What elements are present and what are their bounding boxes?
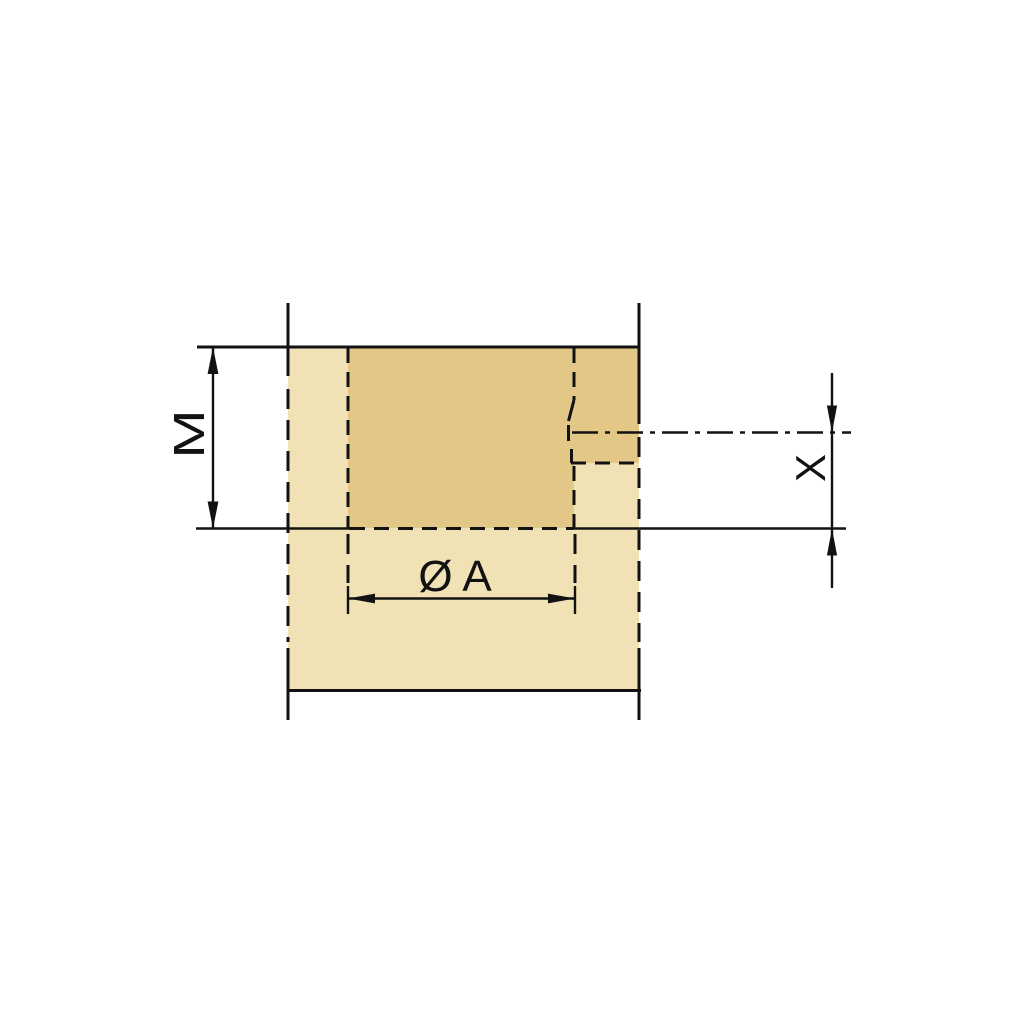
depth-arrow-down bbox=[208, 502, 219, 529]
edge-distance-label: X bbox=[790, 454, 832, 482]
edge-distance-arrow-up bbox=[827, 529, 837, 556]
edge-distance-arrow-down bbox=[827, 406, 837, 433]
technical-drawing-canvas: M Ø A X bbox=[0, 0, 1024, 1024]
depth-arrow-up bbox=[208, 347, 219, 374]
diameter-label: Ø A bbox=[418, 555, 491, 599]
depth-label: M bbox=[168, 409, 212, 458]
drilling-diagram-svg bbox=[0, 0, 1024, 1024]
